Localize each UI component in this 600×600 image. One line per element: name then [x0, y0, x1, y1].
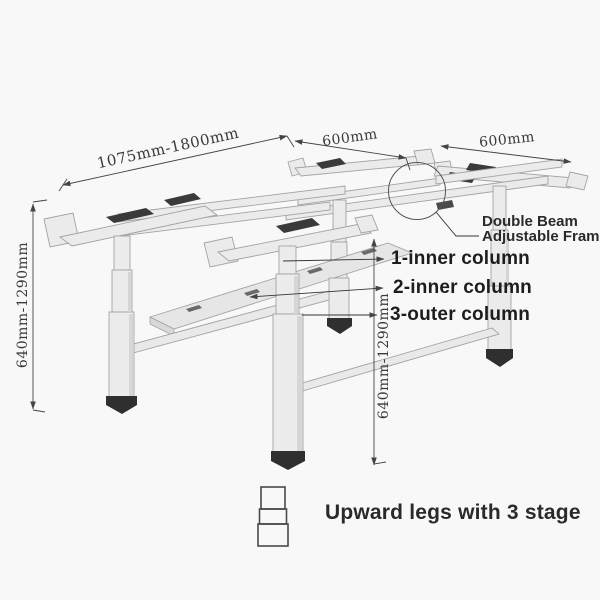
- leg-back-left-lower: [327, 278, 352, 334]
- diagram-canvas: 1075mm-1800mm 600mm 600mm 640mm-1290mm 6…: [0, 0, 600, 600]
- dim-height-center-label: 640mm-1290mm: [376, 271, 392, 441]
- label-inner-column-2: 2-inner column: [393, 276, 532, 300]
- label-inner-column-1: 1-inner column: [391, 247, 530, 271]
- label-outer-column-3: 3-outer column: [390, 303, 530, 327]
- dim-height-left-label: 640mm-1290mm: [15, 220, 31, 390]
- three-stage-leg-icon: [255, 485, 291, 549]
- callout-double-beam: Double Beam: [482, 214, 578, 229]
- callout-adjustable-frame: Adjustable Frame length: [482, 229, 600, 244]
- footer-caption: Upward legs with 3 stage: [325, 500, 581, 526]
- leg-front-left: [106, 236, 137, 414]
